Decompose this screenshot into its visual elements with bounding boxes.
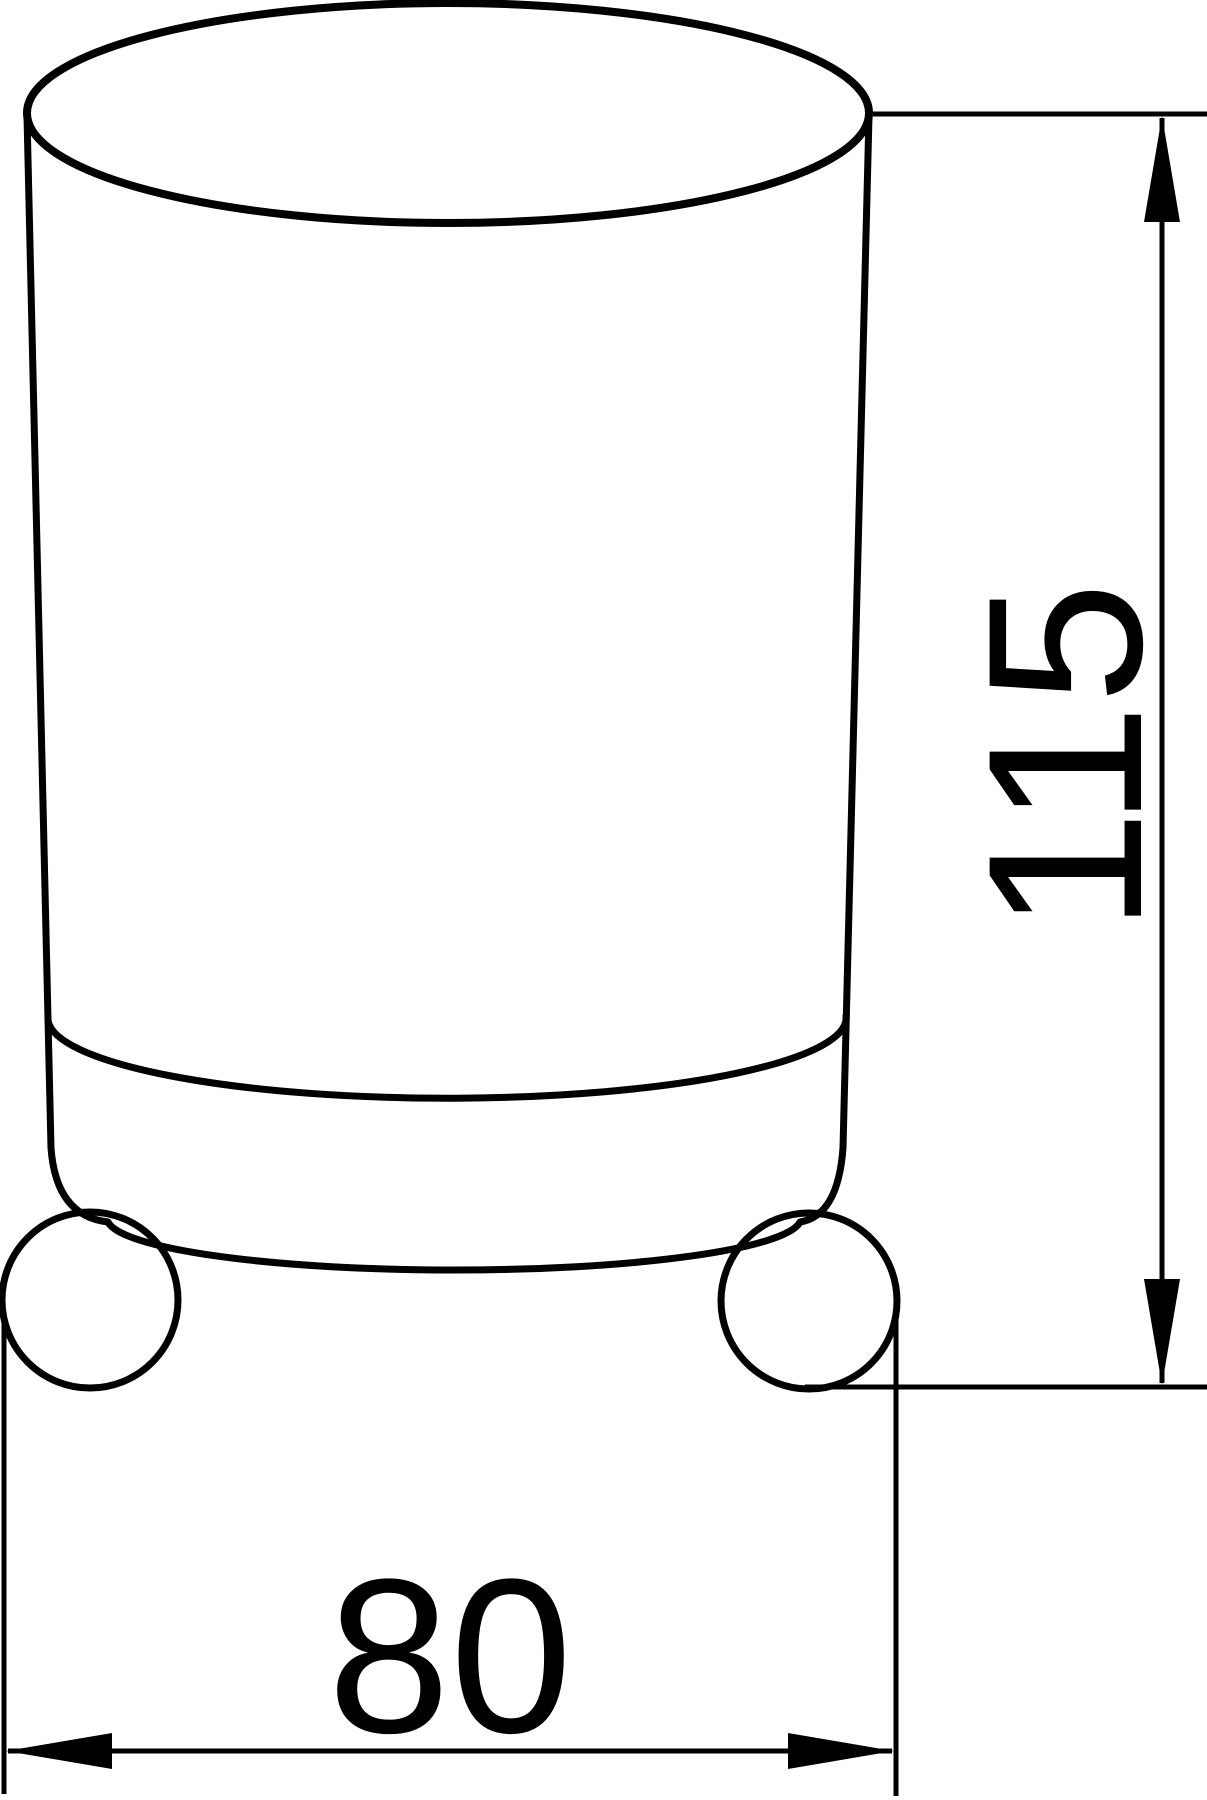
- right-ball-support-circle: [721, 1213, 897, 1389]
- left-ball-support-circle: [2, 1212, 178, 1388]
- drawing-canvas: 115 80: [0, 0, 1207, 1800]
- height-arrowhead-up-icon: [1144, 116, 1180, 222]
- height-dimension-label: 115: [942, 582, 1188, 933]
- technical-drawing: 115 80: [0, 0, 1207, 1800]
- width-dimension-label: 80: [328, 1533, 573, 1779]
- holder-ring-arc: [48, 1016, 846, 1098]
- height-arrowhead-down-icon: [1144, 1279, 1180, 1385]
- width-arrowhead-right-icon: [788, 1733, 894, 1769]
- width-arrowhead-left-icon: [6, 1733, 112, 1769]
- tumbler-rim-ellipse: [27, 3, 869, 223]
